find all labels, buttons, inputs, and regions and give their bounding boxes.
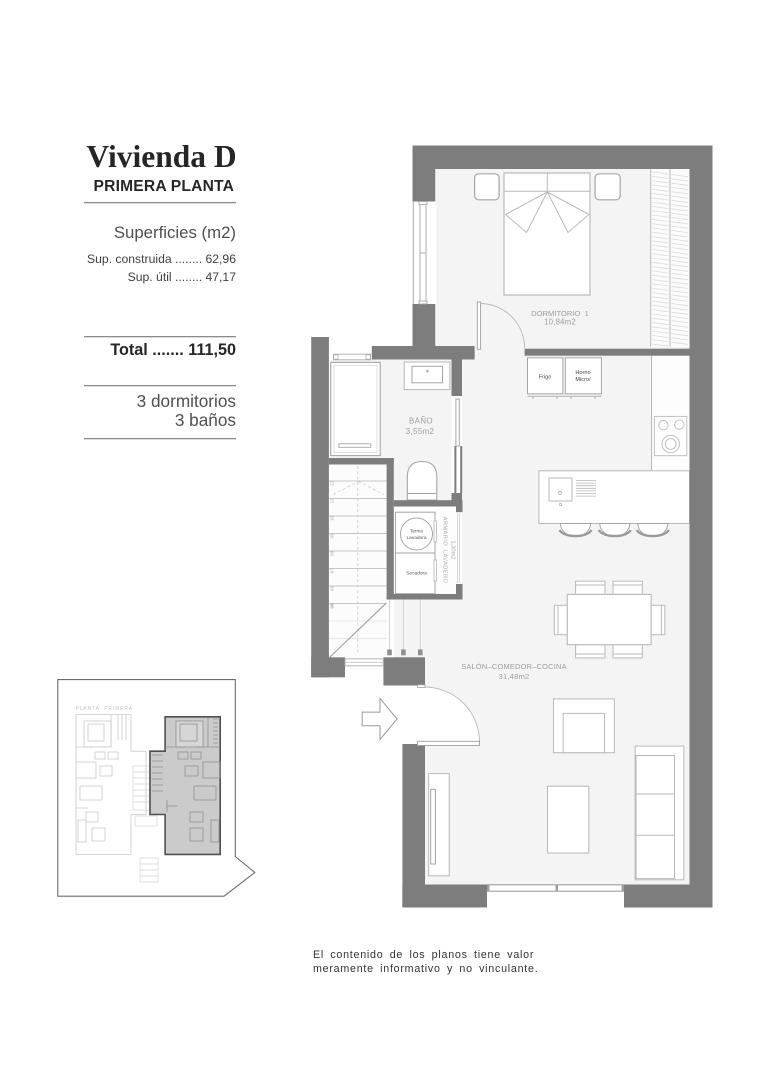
svg-text:3,55m2: 3,55m2 (406, 427, 434, 436)
svg-text:meramente informativo y no vin: meramente informativo y no vinculante. (313, 963, 538, 975)
svg-text:12: 12 (330, 481, 335, 486)
svg-text:07: 07 (330, 568, 335, 573)
svg-text:Total ....... 111,50: Total ....... 111,50 (110, 341, 236, 359)
svg-text:31,48m2: 31,48m2 (499, 672, 530, 681)
svg-text:Lavadora: Lavadora (406, 535, 426, 541)
svg-text:1,30m2: 1,30m2 (450, 541, 456, 560)
svg-text:11: 11 (330, 498, 335, 503)
svg-text:10: 10 (330, 516, 335, 521)
svg-text:Sup. útil ........ 47,17: Sup. útil ........ 47,17 (128, 270, 237, 284)
svg-text:PRIMERA PLANTA: PRIMERA PLANTA (94, 178, 235, 195)
svg-text:Frigo: Frigo (539, 375, 552, 381)
svg-text:Termo: Termo (410, 529, 424, 535)
svg-text:PLANTA PRIMERA: PLANTA PRIMERA (76, 706, 133, 712)
svg-text:04: 04 (330, 603, 335, 608)
svg-text:Sup. construida ........ 62,96: Sup. construida ........ 62,96 (87, 252, 236, 266)
svg-text:Superficies (m2): Superficies (m2) (114, 223, 236, 242)
svg-text:BAÑO: BAÑO (409, 417, 433, 426)
svg-text:Micro/: Micro/ (575, 377, 591, 383)
svg-text:06: 06 (330, 586, 335, 591)
svg-text:El contenido de los planos tie: El contenido de los planos tiene valor (313, 949, 534, 961)
svg-text:Secadora: Secadora (406, 571, 427, 577)
svg-text:Vivienda D: Vivienda D (86, 139, 236, 174)
svg-text:3 dormitorios: 3 dormitorios (137, 391, 236, 411)
svg-text:09: 09 (330, 533, 335, 538)
svg-text:Horno: Horno (575, 370, 590, 376)
svg-text:08: 08 (330, 551, 335, 556)
svg-text:ARMARIO LAVADERO: ARMARIO LAVADERO (442, 517, 448, 584)
svg-text:3 baños: 3 baños (175, 410, 236, 430)
svg-text:10,84m2: 10,84m2 (544, 318, 576, 327)
svg-text:SALÓN–COMEDOR–COCINA: SALÓN–COMEDOR–COCINA (461, 662, 567, 671)
